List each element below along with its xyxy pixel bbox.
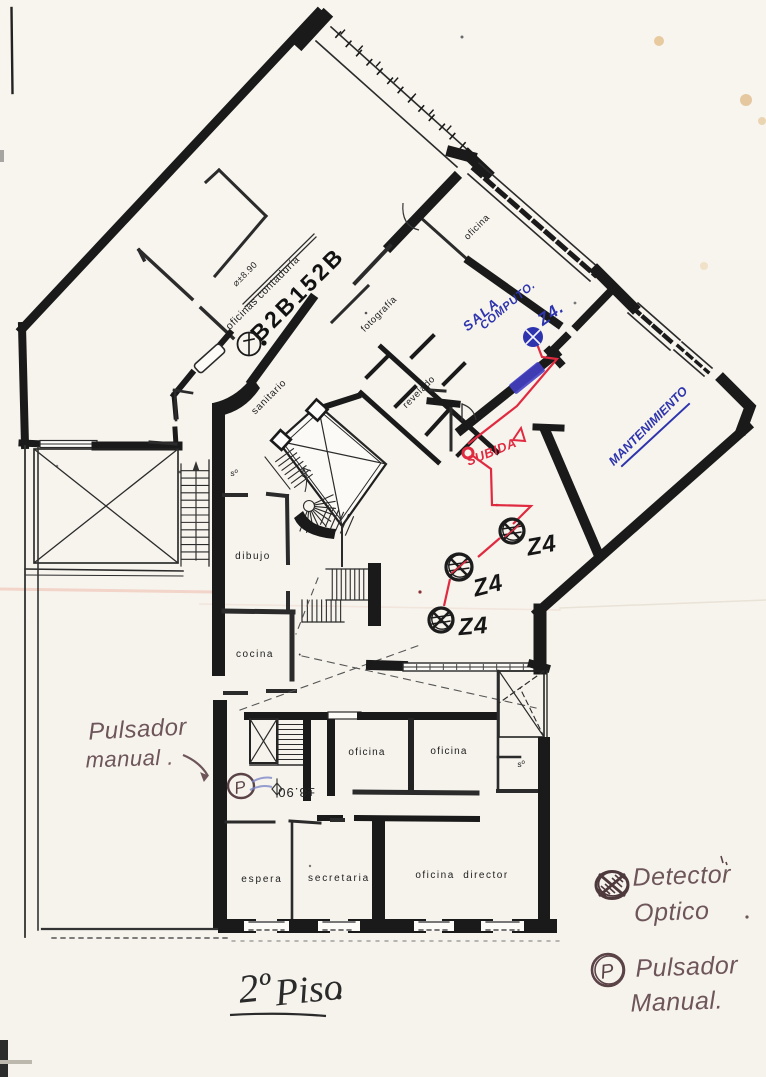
svg-text:Optico: Optico [634,897,710,928]
svg-text:oficina: oficina [348,747,385,758]
svg-text:oficina: oficina [430,746,467,757]
svg-text:Manual.: Manual. [630,986,723,1017]
svg-text:Z4: Z4 [456,612,489,642]
svg-text:2º: 2º [236,963,275,1011]
svg-text:•: • [299,652,302,659]
svg-text:Pulsador: Pulsador [88,713,189,745]
svg-text:espera: espera [241,874,282,885]
svg-text:oficina director: oficina director [415,870,508,881]
svg-text:Detector: Detector [632,860,733,891]
svg-text:sº: sº [517,759,524,769]
svg-text:Z4: Z4 [524,530,559,562]
svg-text:Pulsador: Pulsador [635,951,740,983]
svg-text:sº: sº [230,468,237,478]
svg-text:±8.90: ±8.90 [277,785,314,800]
svg-text:secretaria: secretaria [308,873,370,884]
svg-text:dibujo: dibujo [235,551,271,562]
svg-text:manual .: manual . [85,744,174,772]
svg-text:Piso: Piso [272,966,345,1015]
svg-text:cocina: cocina [236,649,274,660]
